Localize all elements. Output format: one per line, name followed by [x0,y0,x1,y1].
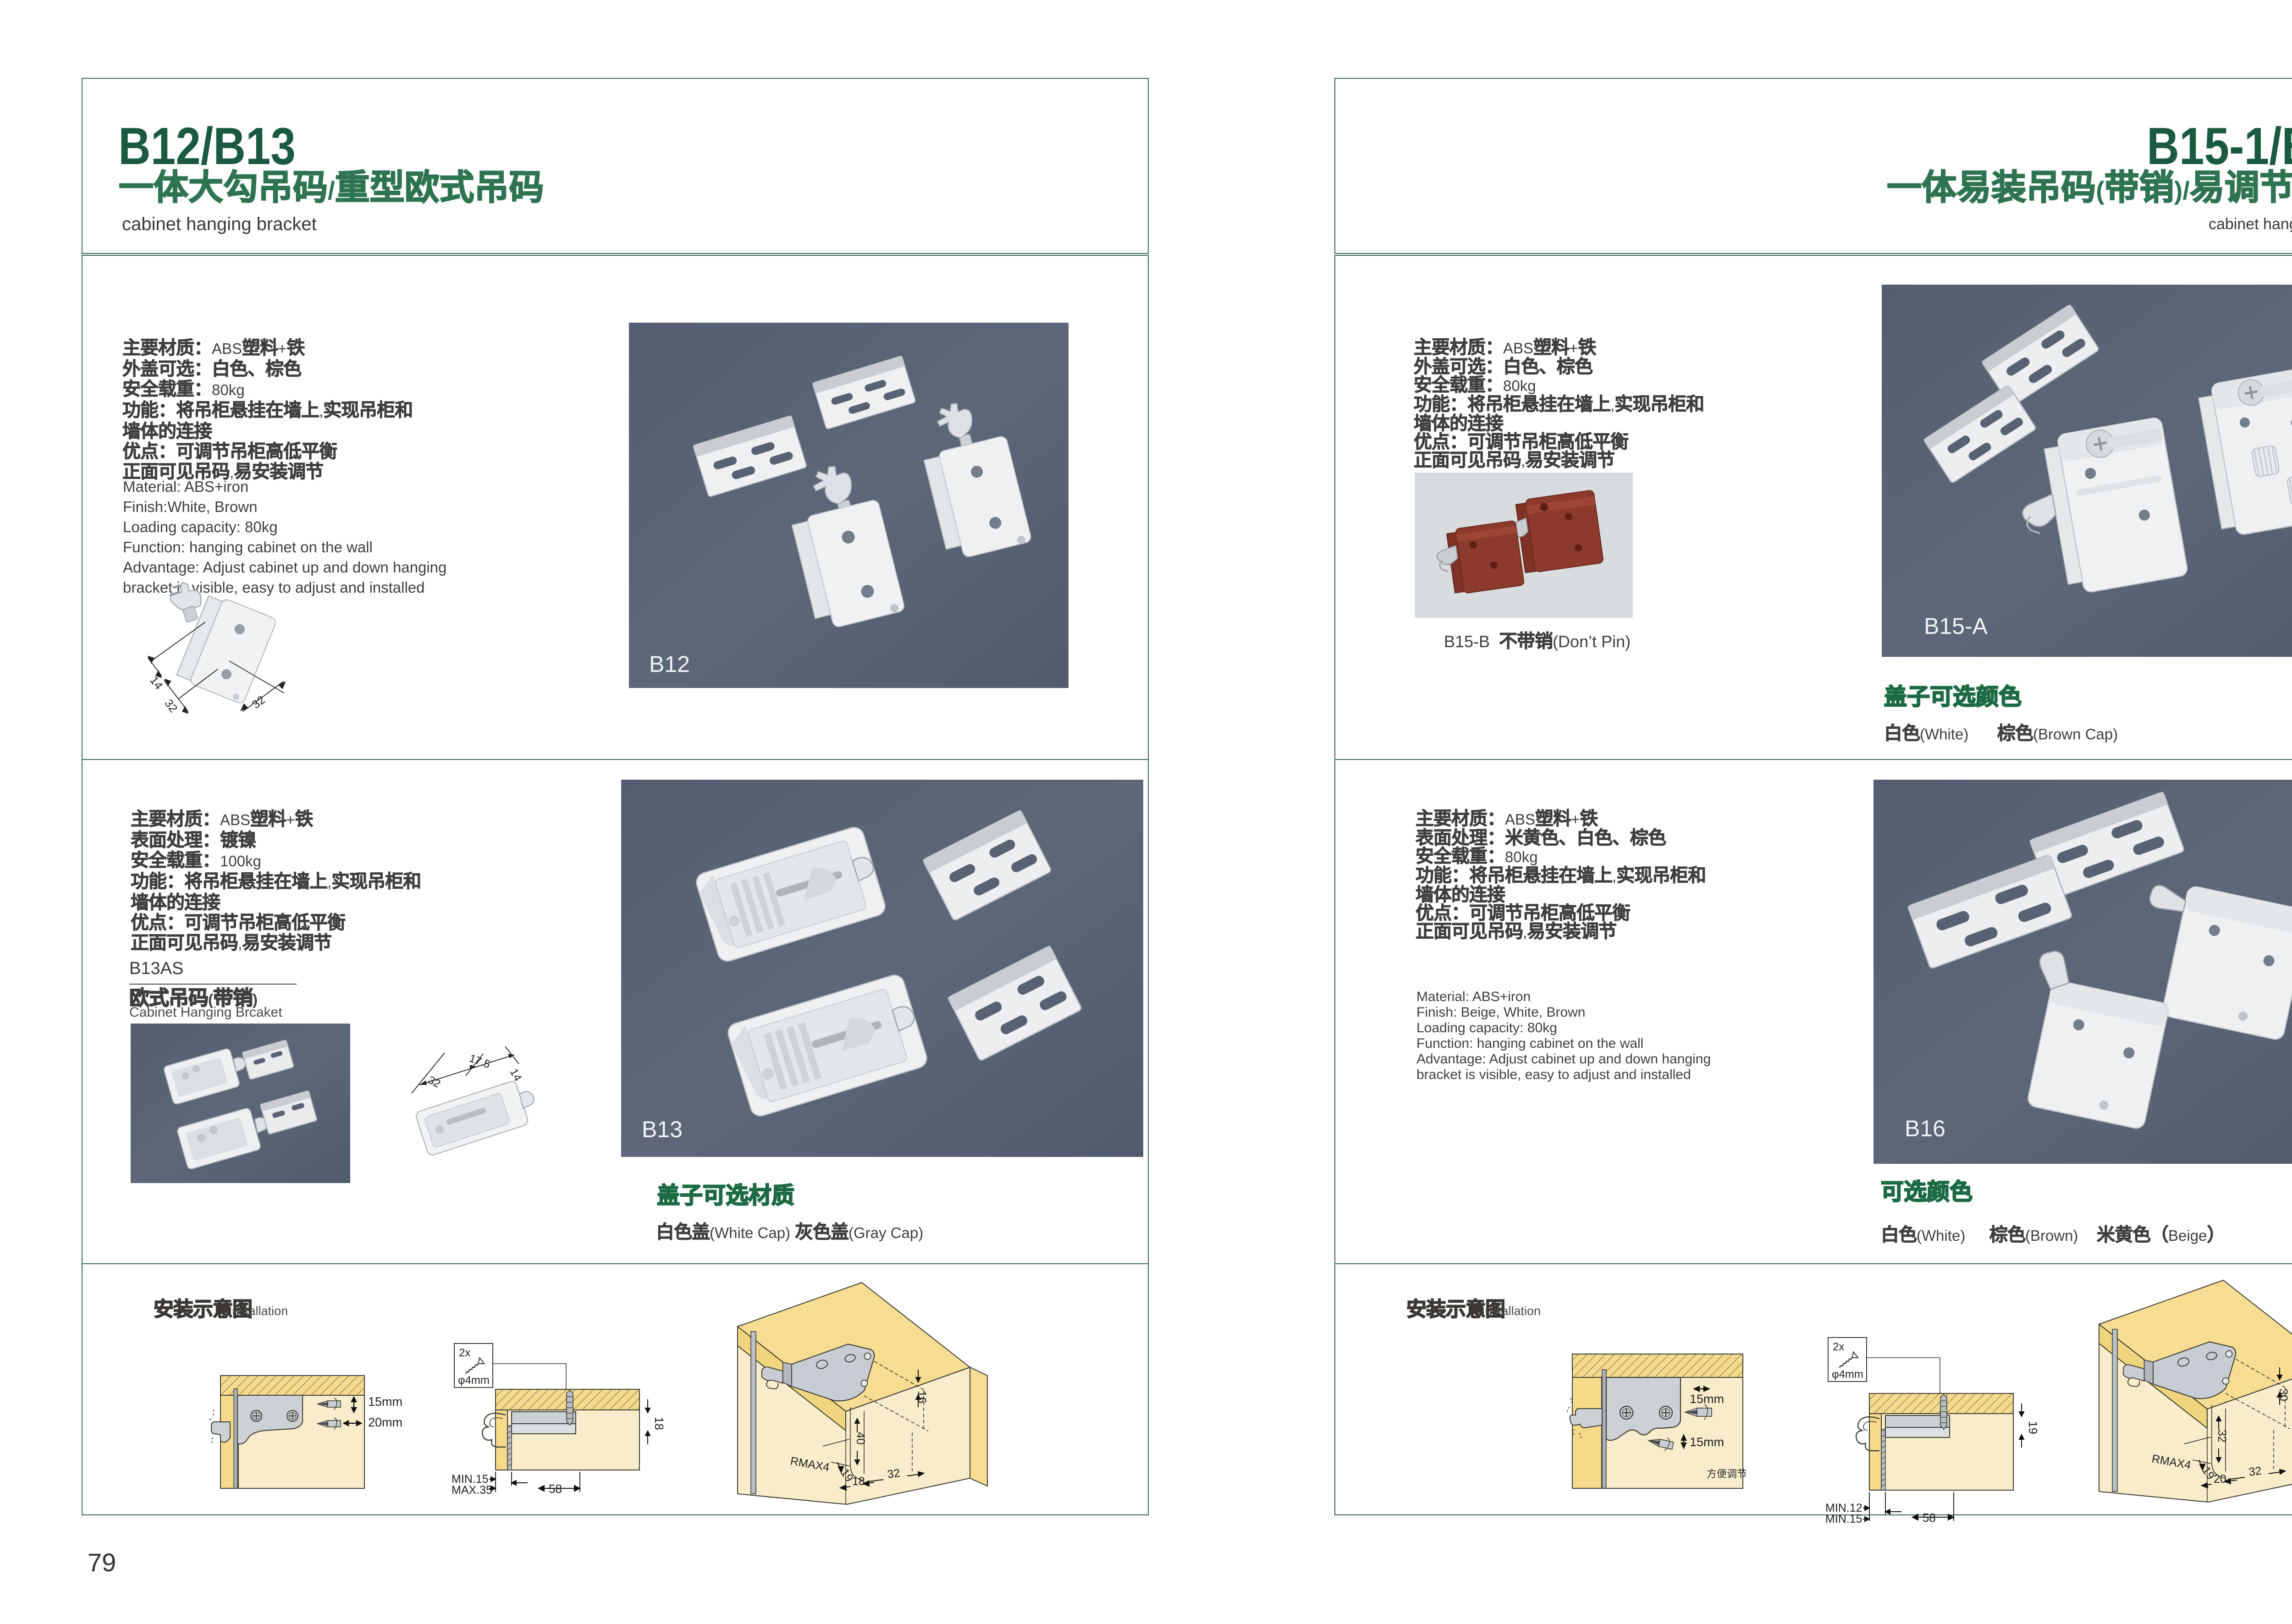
svg-text:B15-A: B15-A [1924,613,1988,639]
svg-text:40: 40 [854,1432,867,1445]
svg-text:B16: B16 [1905,1116,1945,1141]
svg-text:18: 18 [652,1417,666,1430]
svg-text:B13: B13 [642,1117,683,1142]
svg-text:58: 58 [1923,1511,1936,1524]
svg-text:15mm: 15mm [1690,1435,1724,1449]
svg-text:φ4mm: φ4mm [1832,1368,1863,1381]
svg-text:20mm: 20mm [368,1415,402,1429]
svg-text:2x: 2x [1833,1341,1844,1353]
svg-text:14: 14 [147,674,165,692]
svg-text:18: 18 [852,1475,865,1488]
svg-text:32: 32 [2215,1430,2228,1442]
svg-text:16: 16 [915,1391,928,1404]
svg-text:14: 14 [507,1067,524,1083]
svg-text:15mm: 15mm [368,1395,402,1409]
svg-text:MIN.15: MIN.15 [1825,1513,1862,1524]
svg-text:19: 19 [2026,1421,2040,1434]
svg-text:32: 32 [2248,1464,2262,1479]
svg-text:32: 32 [162,697,180,715]
svg-text:32: 32 [426,1073,442,1090]
svg-text:MAX.35: MAX.35 [452,1484,492,1497]
svg-text:2x: 2x [459,1347,470,1359]
svg-text:方便调节: 方便调节 [1707,1468,1747,1480]
svg-text:32: 32 [887,1466,901,1481]
svg-text:30: 30 [2277,1388,2290,1401]
svg-text:20: 20 [2214,1473,2226,1486]
svg-text:B12: B12 [649,651,690,677]
svg-text:15mm: 15mm [1690,1392,1724,1406]
svg-text:φ4mm: φ4mm [458,1374,490,1387]
svg-text:32: 32 [250,694,268,711]
svg-text:58: 58 [549,1482,562,1496]
